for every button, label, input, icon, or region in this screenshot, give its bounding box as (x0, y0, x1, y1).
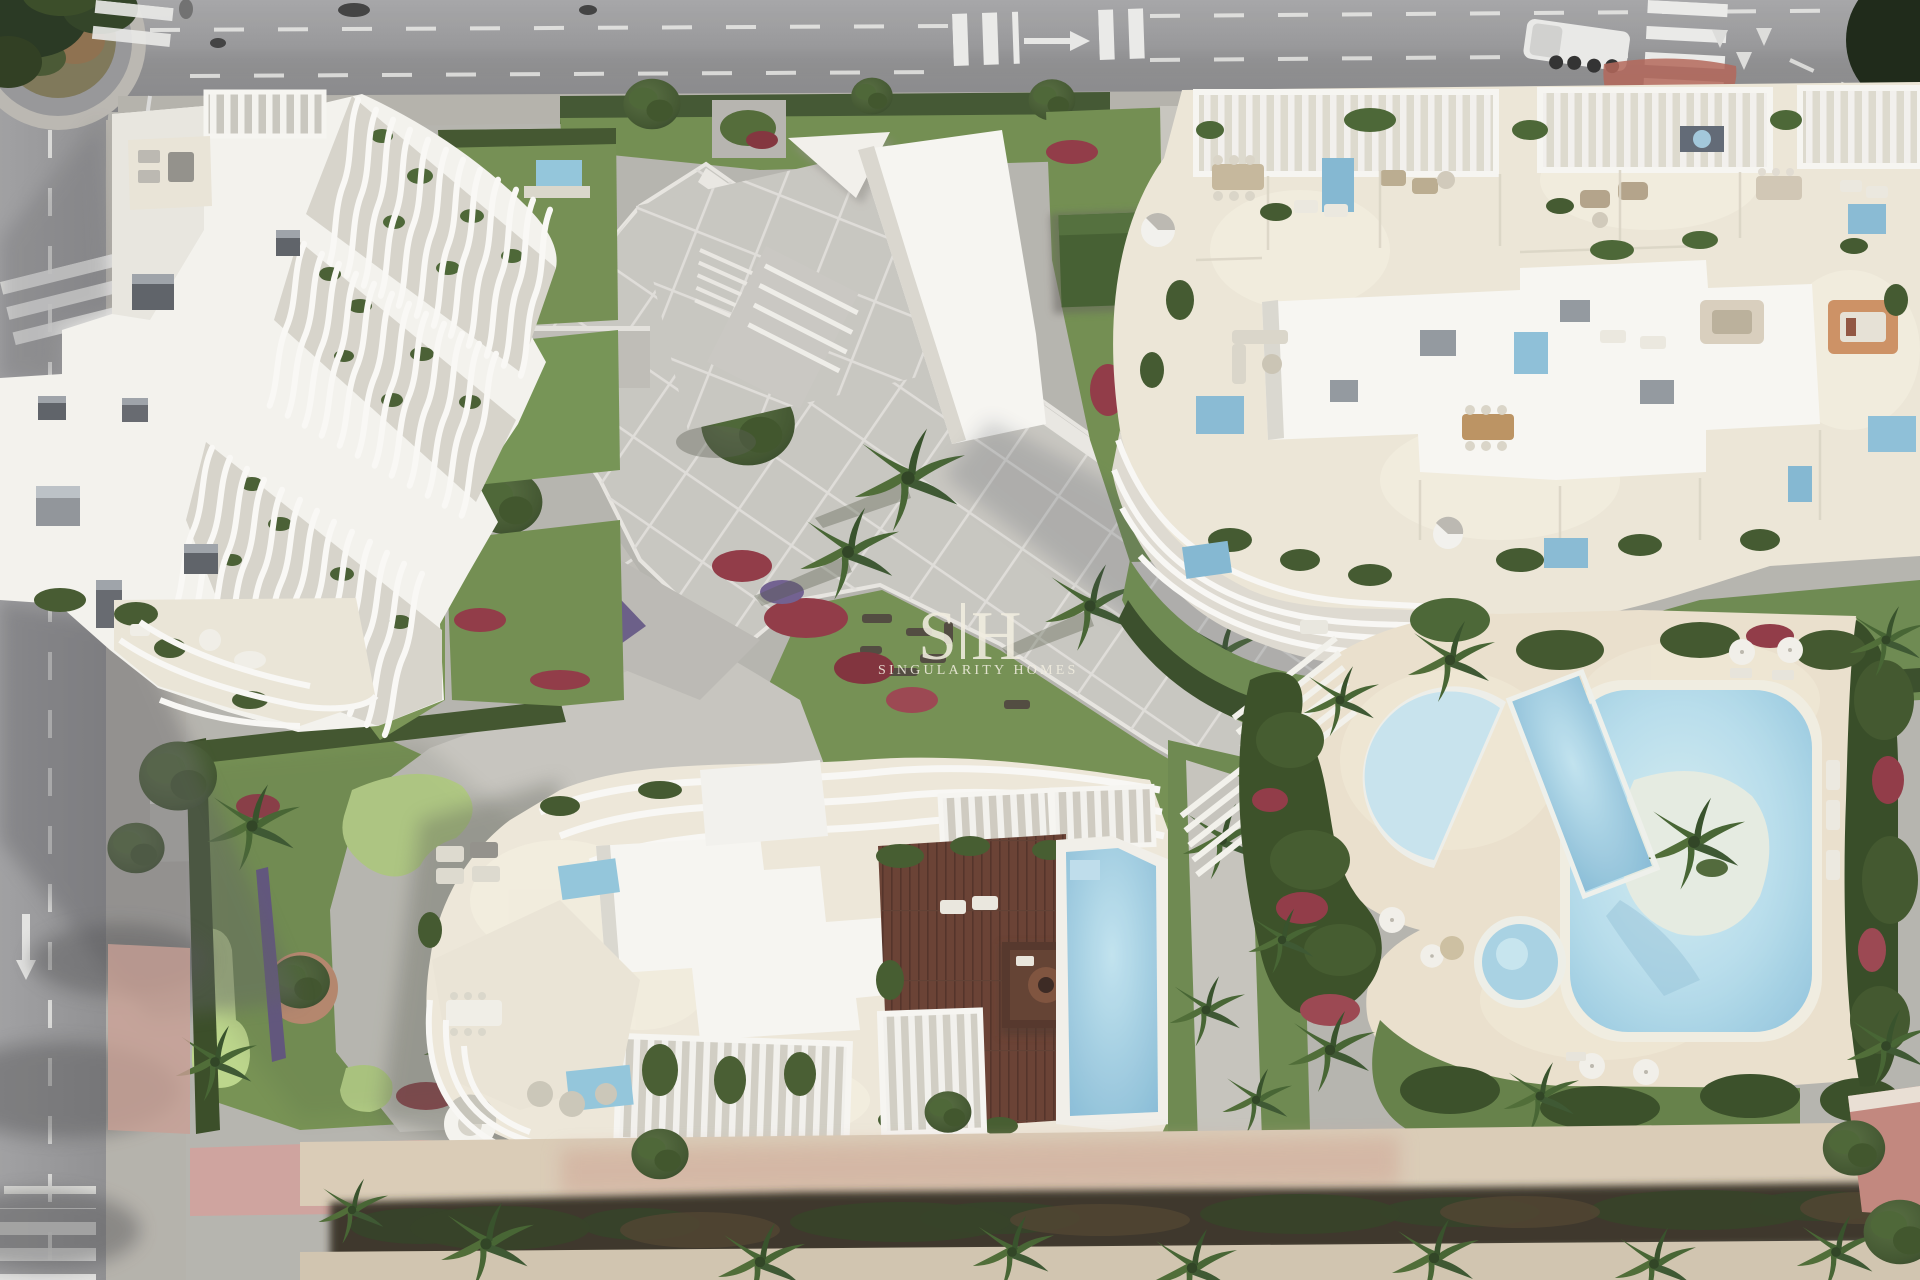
svg-text:SINGULARITY HOMES: SINGULARITY HOMES (878, 663, 1079, 678)
